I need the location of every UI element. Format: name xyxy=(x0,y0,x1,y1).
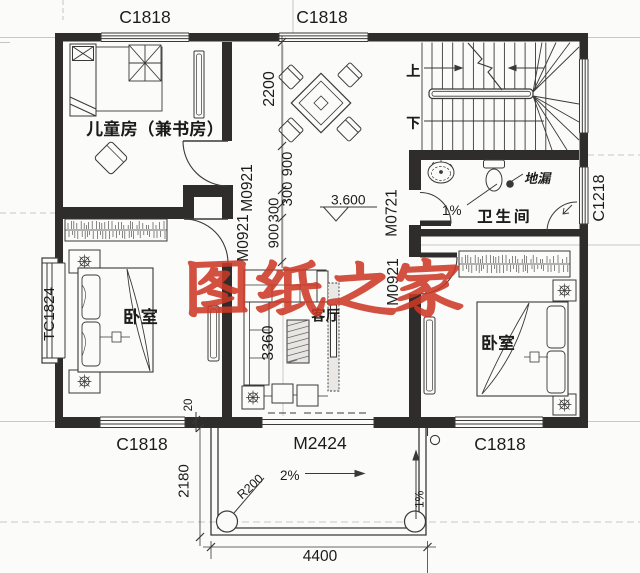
svg-text:M0721: M0721 xyxy=(384,189,401,236)
svg-text:900: 900 xyxy=(280,152,296,177)
svg-text:M2424: M2424 xyxy=(293,433,347,453)
svg-text:1%: 1% xyxy=(413,490,427,508)
svg-text:2200: 2200 xyxy=(261,71,278,107)
svg-text:3.600: 3.600 xyxy=(331,193,366,208)
svg-text:3360: 3360 xyxy=(260,325,277,360)
svg-text:M0921: M0921 xyxy=(235,214,252,261)
svg-text:C1818: C1818 xyxy=(296,7,348,27)
svg-text:C1218: C1218 xyxy=(591,174,608,221)
svg-text:M0921: M0921 xyxy=(239,164,256,211)
svg-text:C1818: C1818 xyxy=(474,434,526,454)
svg-text:900: 900 xyxy=(267,224,283,249)
svg-text:2180: 2180 xyxy=(176,464,193,498)
svg-text:300: 300 xyxy=(267,198,283,223)
svg-text:2%: 2% xyxy=(280,468,300,483)
svg-text:C1818: C1818 xyxy=(119,7,171,27)
svg-text:C1818: C1818 xyxy=(116,434,168,454)
svg-text:20: 20 xyxy=(183,399,195,412)
svg-text:4400: 4400 xyxy=(303,548,338,565)
svg-text:1%: 1% xyxy=(442,203,462,218)
svg-text:TC1824: TC1824 xyxy=(41,287,58,341)
